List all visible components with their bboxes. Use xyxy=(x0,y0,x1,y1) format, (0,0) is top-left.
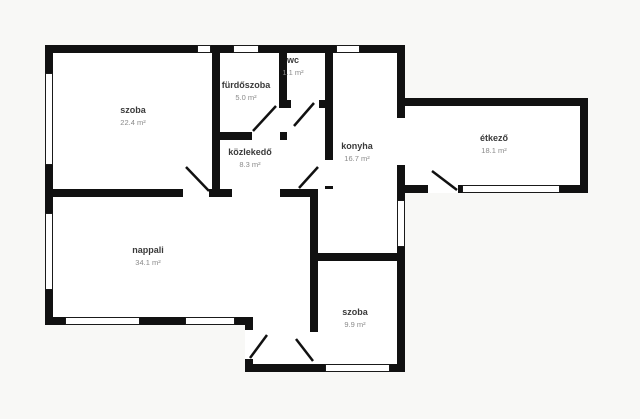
window xyxy=(186,318,235,325)
window xyxy=(198,46,211,53)
room-area-furdoszoba: 5.0 m² xyxy=(235,93,257,102)
window xyxy=(463,186,560,193)
window xyxy=(234,46,259,53)
room-area-szoba-2: 9.9 m² xyxy=(344,320,366,329)
floor-area xyxy=(245,317,318,372)
window xyxy=(66,318,140,325)
room-area-nappali: 34.1 m² xyxy=(135,258,161,267)
room-area-etkezo: 18.1 m² xyxy=(481,146,507,155)
door-opening xyxy=(232,189,280,197)
room-label-etkezo: étkező xyxy=(480,133,509,143)
wall xyxy=(580,98,588,193)
wall xyxy=(279,53,287,108)
room-label-szoba-1: szoba xyxy=(120,105,147,115)
window xyxy=(326,365,390,372)
door-opening xyxy=(291,100,319,108)
room-label-konyha: konyha xyxy=(341,141,374,151)
window xyxy=(46,214,53,290)
room-area-konyha: 16.7 m² xyxy=(344,154,370,163)
window xyxy=(46,74,53,165)
door-opening xyxy=(252,132,280,140)
door-opening xyxy=(183,189,209,197)
floor-area xyxy=(45,45,318,325)
room-area-wc: 1.1 m² xyxy=(282,68,304,77)
door-opening xyxy=(325,160,333,186)
wall xyxy=(405,98,588,106)
room-label-szoba-2: szoba xyxy=(342,307,369,317)
floorplan-svg: szoba22.4 m²fürdőszoba5.0 m²wc1.1 m²közl… xyxy=(0,0,640,419)
wall xyxy=(397,261,405,372)
window xyxy=(398,201,405,247)
room-label-furdoszoba: fürdőszoba xyxy=(222,80,271,90)
room-label-nappali: nappali xyxy=(132,245,164,255)
room-label-wc: wc xyxy=(286,55,299,65)
room-label-kozlekedo: közlekedő xyxy=(228,147,272,157)
room-area-kozlekedo: 8.3 m² xyxy=(239,160,261,169)
wall xyxy=(310,253,405,261)
floorplan-page: szoba22.4 m²fürdőszoba5.0 m²wc1.1 m²közl… xyxy=(0,0,640,419)
wall xyxy=(212,53,220,189)
room-area-szoba-1: 22.4 m² xyxy=(120,118,146,127)
window xyxy=(337,46,360,53)
door-opening xyxy=(397,118,405,165)
